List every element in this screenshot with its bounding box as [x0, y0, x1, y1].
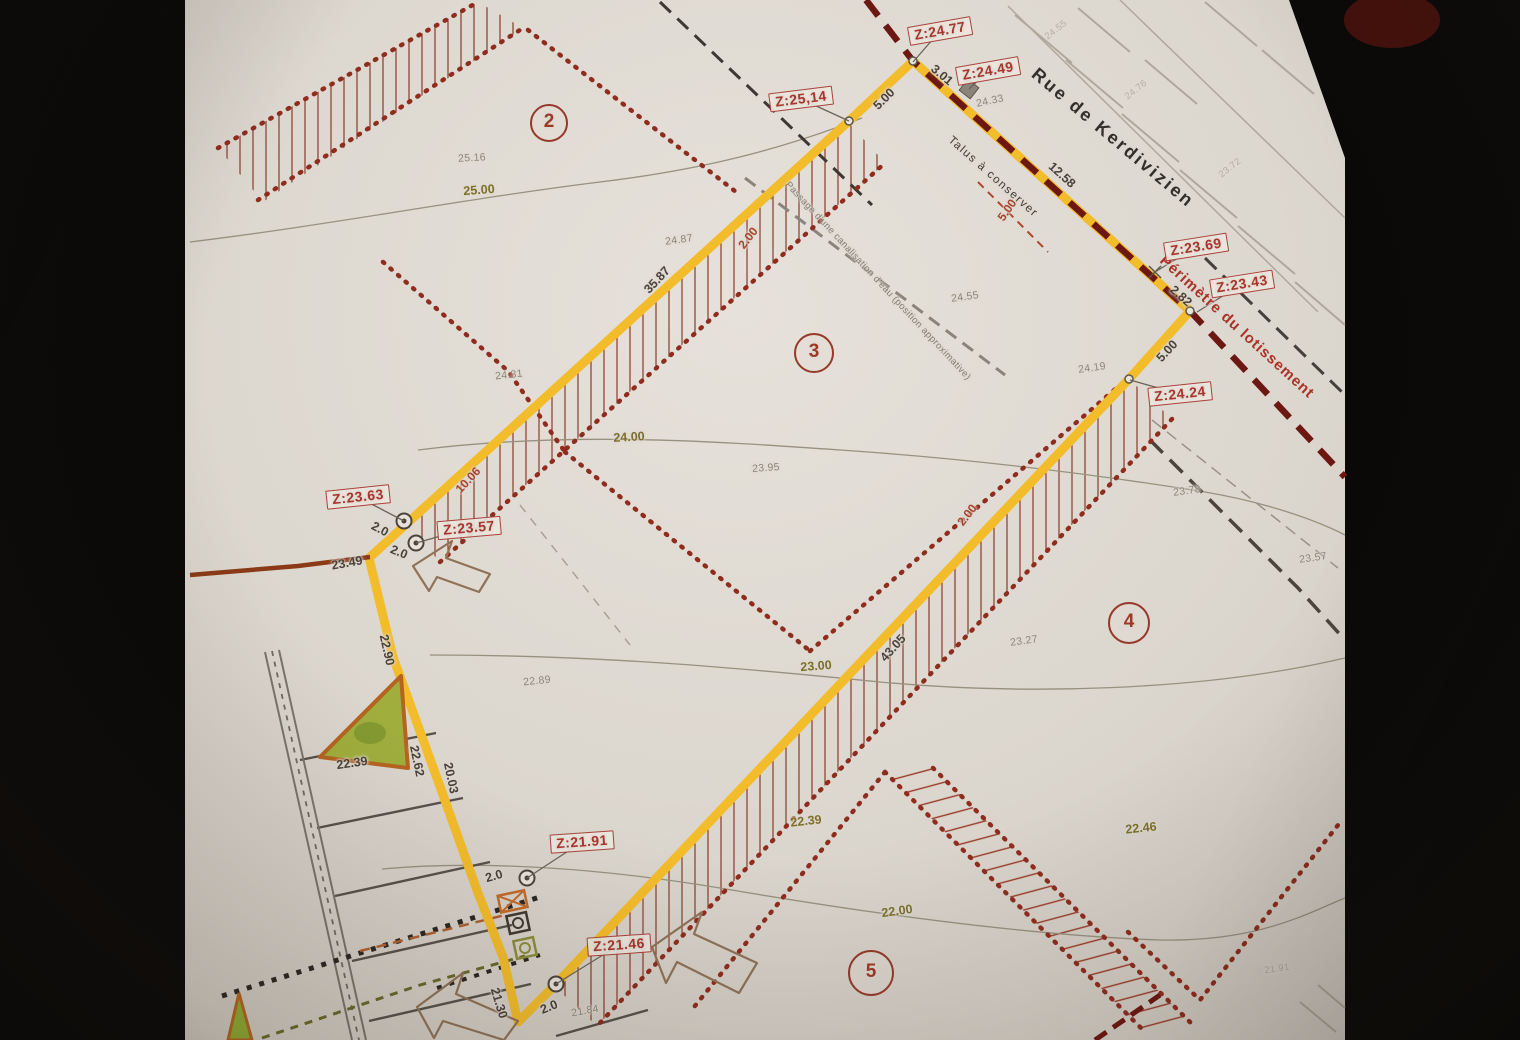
spot-elevation: 23.78 — [1172, 483, 1201, 499]
dimension-label: 2.0 — [388, 542, 409, 561]
lot-number-4: 4 — [1108, 602, 1150, 644]
elevation-marker: Z:24.49 — [955, 56, 1021, 86]
dimension-label-red: 10.06 — [453, 464, 484, 496]
survey-plan-photo: Rue de Kerdivizien Périmètre du lotissem… — [0, 0, 1520, 1040]
elevation-marker: Z:24.24 — [1147, 381, 1212, 407]
dimension-label: 22.90 — [377, 633, 398, 667]
elevation-marker: Z:23.43 — [1209, 270, 1275, 299]
dimension-label: 21.30 — [488, 986, 511, 1020]
street-name: Rue de Kerdivizien — [1027, 64, 1198, 213]
elevation-marker: Z:23.69 — [1163, 233, 1229, 262]
dimension-label: 22.62 — [407, 744, 427, 778]
spot-elevation: 24.33 — [975, 92, 1005, 110]
elevation-marker: Z:25,14 — [768, 86, 834, 113]
dimension-label: 3.01 — [928, 62, 956, 88]
lot-number-5: 5 — [848, 950, 894, 996]
dimension-label: 20.03 — [441, 761, 461, 795]
contour-label: 25.00 — [463, 182, 495, 198]
dimension-label: 2.0 — [538, 997, 559, 1016]
dimension-label: 5.00 — [870, 85, 897, 112]
elevation-marker: Z:21.91 — [550, 830, 615, 853]
spot-elevation: 24.76 — [1123, 78, 1150, 102]
spot-elevation: 24.87 — [664, 232, 693, 248]
talus-label: Talus à conserver — [946, 134, 1041, 220]
spot-elevation: 23.27 — [1009, 633, 1038, 649]
spot-elevation: 25.16 — [458, 151, 486, 164]
contour-label: 22.39 — [790, 812, 823, 829]
spot-elevation: 24.55 — [1043, 18, 1070, 42]
spot-elevation: 24.19 — [1077, 360, 1106, 376]
elevation-marker: Z:24.77 — [907, 16, 973, 46]
dimension-label: 22.39 — [336, 754, 369, 772]
elevation-marker: Z:23.63 — [325, 484, 390, 510]
contour-label: 24.00 — [613, 429, 645, 445]
spot-elevation: 21.84 — [570, 1003, 599, 1020]
spot-elevation: 24.31 — [495, 368, 524, 383]
spot-elevation: 23.95 — [752, 461, 781, 475]
plan-annotations: Rue de Kerdivizien Périmètre du lotissem… — [0, 0, 1520, 1040]
elevation-marker: Z:21.46 — [587, 933, 652, 956]
dimension-label: 35.87 — [641, 264, 673, 296]
spot-elevation: 21.91 — [1264, 962, 1291, 976]
dimension-label: 43.05 — [877, 632, 908, 665]
dimension-label: 23.49 — [330, 553, 363, 572]
contour-label: 23.00 — [800, 658, 832, 674]
dimension-label-red: 2.00 — [954, 501, 979, 528]
dimension-label: 12.58 — [1046, 159, 1079, 190]
spot-elevation: 23.72 — [1217, 156, 1244, 180]
dimension-label: 5.00 — [1154, 337, 1181, 364]
spot-elevation: 23.57 — [1298, 550, 1327, 566]
spot-elevation: 22.89 — [523, 674, 552, 689]
contour-label: 22.00 — [881, 902, 914, 920]
lot-number-3: 3 — [794, 333, 834, 373]
spot-elevation: 24.55 — [950, 289, 979, 305]
dimension-label: 2.0 — [369, 519, 391, 540]
dimension-label: 2.0 — [484, 867, 505, 885]
lot-number-2: 2 — [530, 104, 568, 142]
elevation-marker: Z:23.57 — [436, 516, 501, 540]
dimension-label-red: 2.00 — [735, 224, 760, 251]
contour-label: 22.46 — [1125, 819, 1158, 836]
